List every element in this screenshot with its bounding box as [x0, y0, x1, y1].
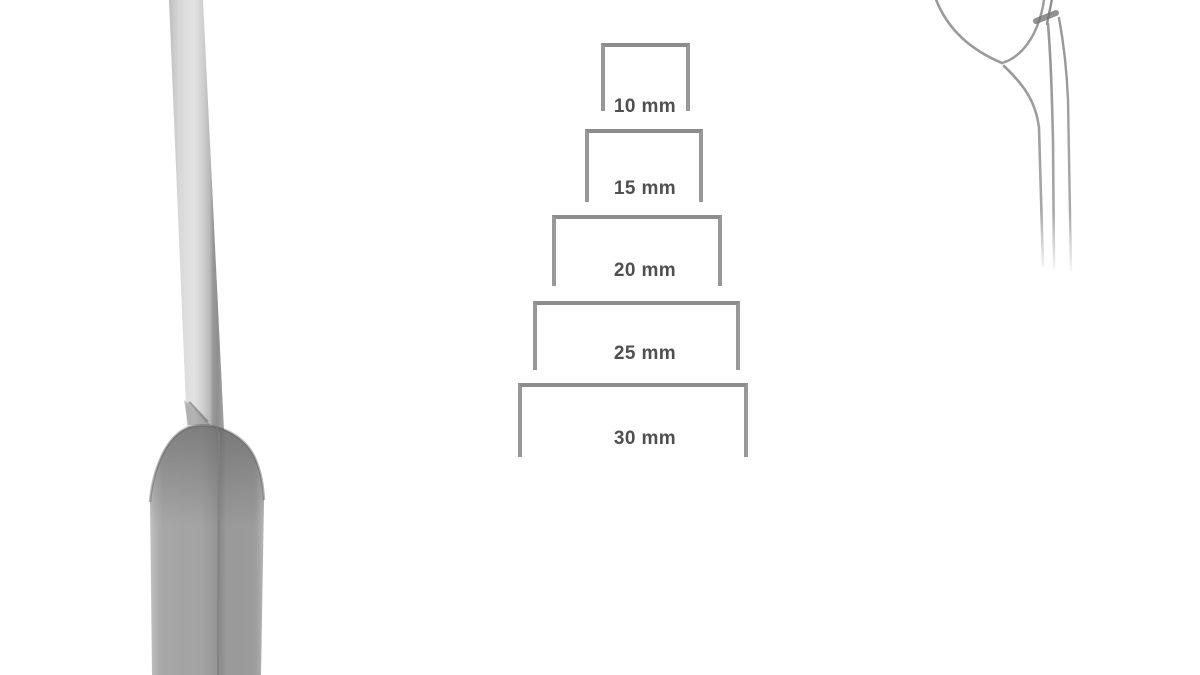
instrument-shaft [169, 0, 224, 430]
tip-blade-right-contour [1002, 0, 1045, 63]
illustration-canvas: 10 mm 15 mm 20 mm 25 mm 30 mm [0, 0, 1200, 675]
instrument-handle-ridge [218, 432, 219, 675]
size-label-20mm: 20 mm [614, 261, 676, 281]
tip-blade-left-contour [934, 0, 1002, 63]
size-label-10mm: 10 mm [614, 97, 676, 117]
size-label-30mm: 30 mm [614, 429, 676, 449]
tip-shaft-line-left [1004, 66, 1043, 266]
size-label-15mm: 15 mm [614, 179, 676, 199]
instrument-handle-shoulder [150, 425, 264, 525]
tip-shaft-line-middle [1048, 24, 1054, 268]
tip-detail-illustration [900, 0, 1200, 300]
tip-shaft-line-right [1059, 18, 1071, 270]
size-label-25mm: 25 mm [614, 344, 676, 364]
tip-junction-mark [1036, 13, 1056, 21]
instrument-illustration [0, 0, 320, 675]
